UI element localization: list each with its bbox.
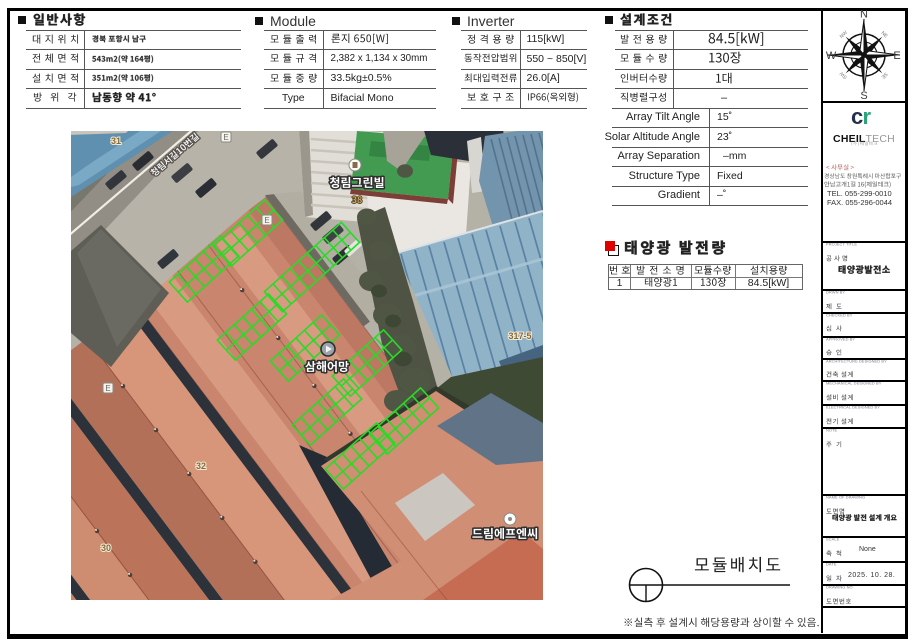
svg-text:c: c	[851, 107, 863, 127]
svg-text:S: S	[860, 90, 867, 101]
svg-text:E: E	[264, 216, 269, 225]
svg-text:31: 31	[111, 136, 121, 146]
svg-text:30: 30	[101, 543, 111, 553]
svg-text:E: E	[223, 133, 228, 142]
svg-text:N: N	[860, 9, 868, 21]
svg-text:W: W	[826, 50, 837, 62]
svg-text:32: 32	[196, 461, 206, 471]
svg-text:E: E	[893, 50, 900, 62]
svg-text:r: r	[863, 107, 872, 127]
svg-text:317-5: 317-5	[508, 331, 531, 341]
svg-text:E: E	[105, 384, 110, 393]
